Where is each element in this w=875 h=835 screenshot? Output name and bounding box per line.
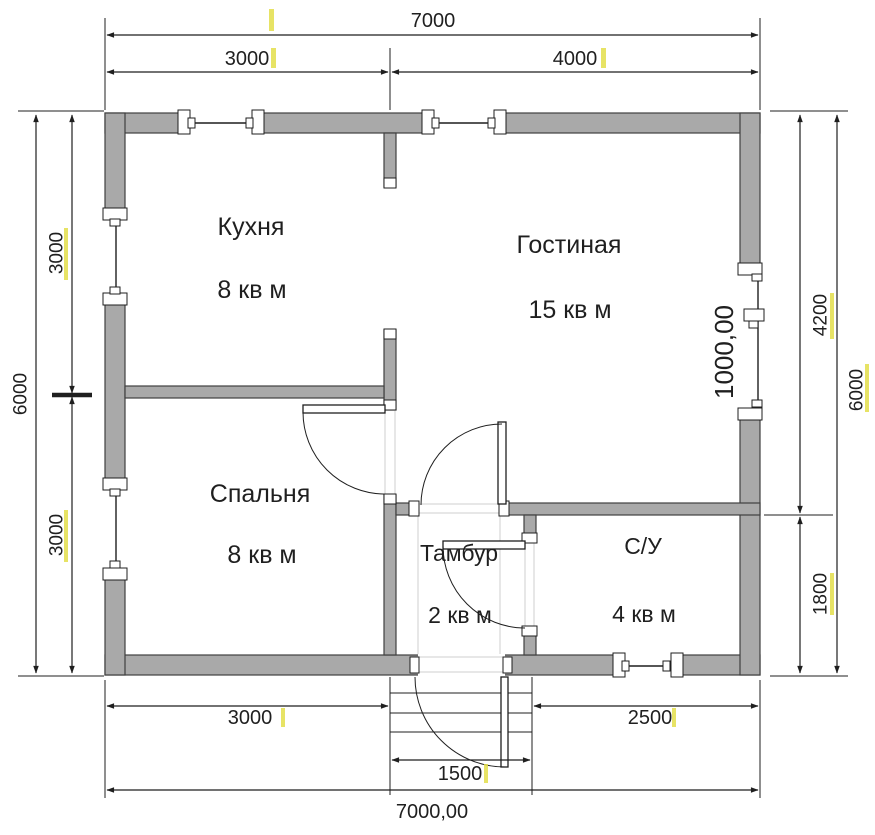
window-jamb-fixture — [409, 501, 419, 516]
dimension-highlight — [601, 48, 606, 68]
window-jamb-fixture — [432, 118, 439, 128]
window-jamb-fixture — [110, 561, 120, 568]
window-jamb-fixture — [622, 661, 629, 671]
window-jamb-fixture — [246, 118, 253, 128]
window-jamb-fixture — [494, 110, 506, 134]
window-jamb-fixture — [188, 118, 195, 128]
window-jamb-fixture — [752, 400, 762, 407]
wall-segment — [500, 503, 760, 515]
door-swing-arc — [421, 424, 502, 505]
window-jamb-fixture — [384, 400, 396, 410]
window-jamb-fixture — [103, 208, 127, 220]
room-area: 4 кв м — [612, 601, 676, 627]
dimension-label: 3000 — [47, 514, 68, 556]
dimension-label: 3000 — [47, 232, 68, 274]
wall-opening — [739, 275, 763, 410]
dimension-label: 1000,00 — [709, 305, 739, 399]
window-jamb-fixture — [671, 653, 683, 677]
window-jamb-fixture — [384, 329, 396, 339]
dimension-highlight — [484, 764, 488, 783]
room-area: 15 кв м — [528, 296, 611, 324]
window-jamb-fixture — [488, 118, 495, 128]
dimension-label: 4200 — [811, 294, 832, 336]
wall-segment — [125, 386, 384, 398]
room-area: 8 кв м — [227, 541, 296, 569]
window-jamb-fixture — [110, 489, 120, 496]
window-jamb-fixture — [103, 293, 127, 305]
dimension-label: 4000 — [553, 48, 598, 70]
dimension-label: 2500 — [628, 707, 673, 729]
window-jamb-fixture — [738, 263, 762, 275]
door-leaf — [498, 422, 506, 504]
wall-segment — [384, 495, 396, 655]
door-leaf — [501, 677, 508, 767]
window-jamb-fixture — [744, 309, 764, 321]
window-jamb-fixture — [110, 287, 120, 294]
door-leaf — [303, 405, 385, 413]
window-jamb-fixture — [103, 568, 127, 580]
room-name: С/У — [624, 533, 662, 559]
dimension-label: 1800 — [811, 573, 832, 615]
window-jamb-fixture — [110, 219, 120, 226]
floor-plan-svg: 7000300040006000300030004200180060001000… — [0, 0, 875, 835]
room-area: 8 кв м — [217, 276, 286, 304]
wall-opening — [103, 490, 127, 570]
window-jamb-fixture — [663, 661, 670, 671]
window-jamb-fixture — [384, 178, 396, 188]
dimension-label: 6000 — [11, 373, 32, 415]
dimension-label: 6000 — [847, 369, 868, 411]
window-jamb-fixture — [103, 478, 127, 490]
wall-segment — [384, 330, 396, 410]
dimension-highlight — [672, 708, 676, 727]
room-name: Гостиная — [517, 231, 622, 259]
dimension-label: 3000 — [228, 707, 273, 729]
window-jamb-fixture — [752, 274, 762, 281]
wall-opening — [103, 220, 127, 295]
dimension-label: 7000 — [411, 10, 456, 32]
wall-segment — [105, 113, 125, 675]
window-jamb-fixture — [410, 657, 419, 673]
window-jamb-fixture — [738, 408, 762, 420]
dimension-highlight — [281, 708, 285, 727]
door-swing-arc — [415, 677, 505, 767]
dimension-highlight — [269, 9, 274, 31]
window-jamb-fixture — [384, 494, 396, 504]
window-jamb-fixture — [749, 321, 758, 328]
window-jamb-fixture — [503, 657, 512, 673]
dimension-label: 1500 — [438, 763, 483, 785]
window-jamb-fixture — [252, 110, 264, 134]
room-name: Кухня — [218, 213, 285, 241]
room-area: 2 кв м — [428, 602, 492, 628]
room-name: Тамбур — [420, 540, 498, 566]
door-swing-arc — [303, 412, 385, 494]
dimension-label: 7000,00 — [396, 801, 468, 823]
dimension-highlight — [271, 48, 276, 68]
dimension-label: 3000 — [225, 48, 270, 70]
room-name: Спальня — [210, 480, 310, 508]
floor-plan-canvas: 7000300040006000300030004200180060001000… — [0, 0, 875, 835]
